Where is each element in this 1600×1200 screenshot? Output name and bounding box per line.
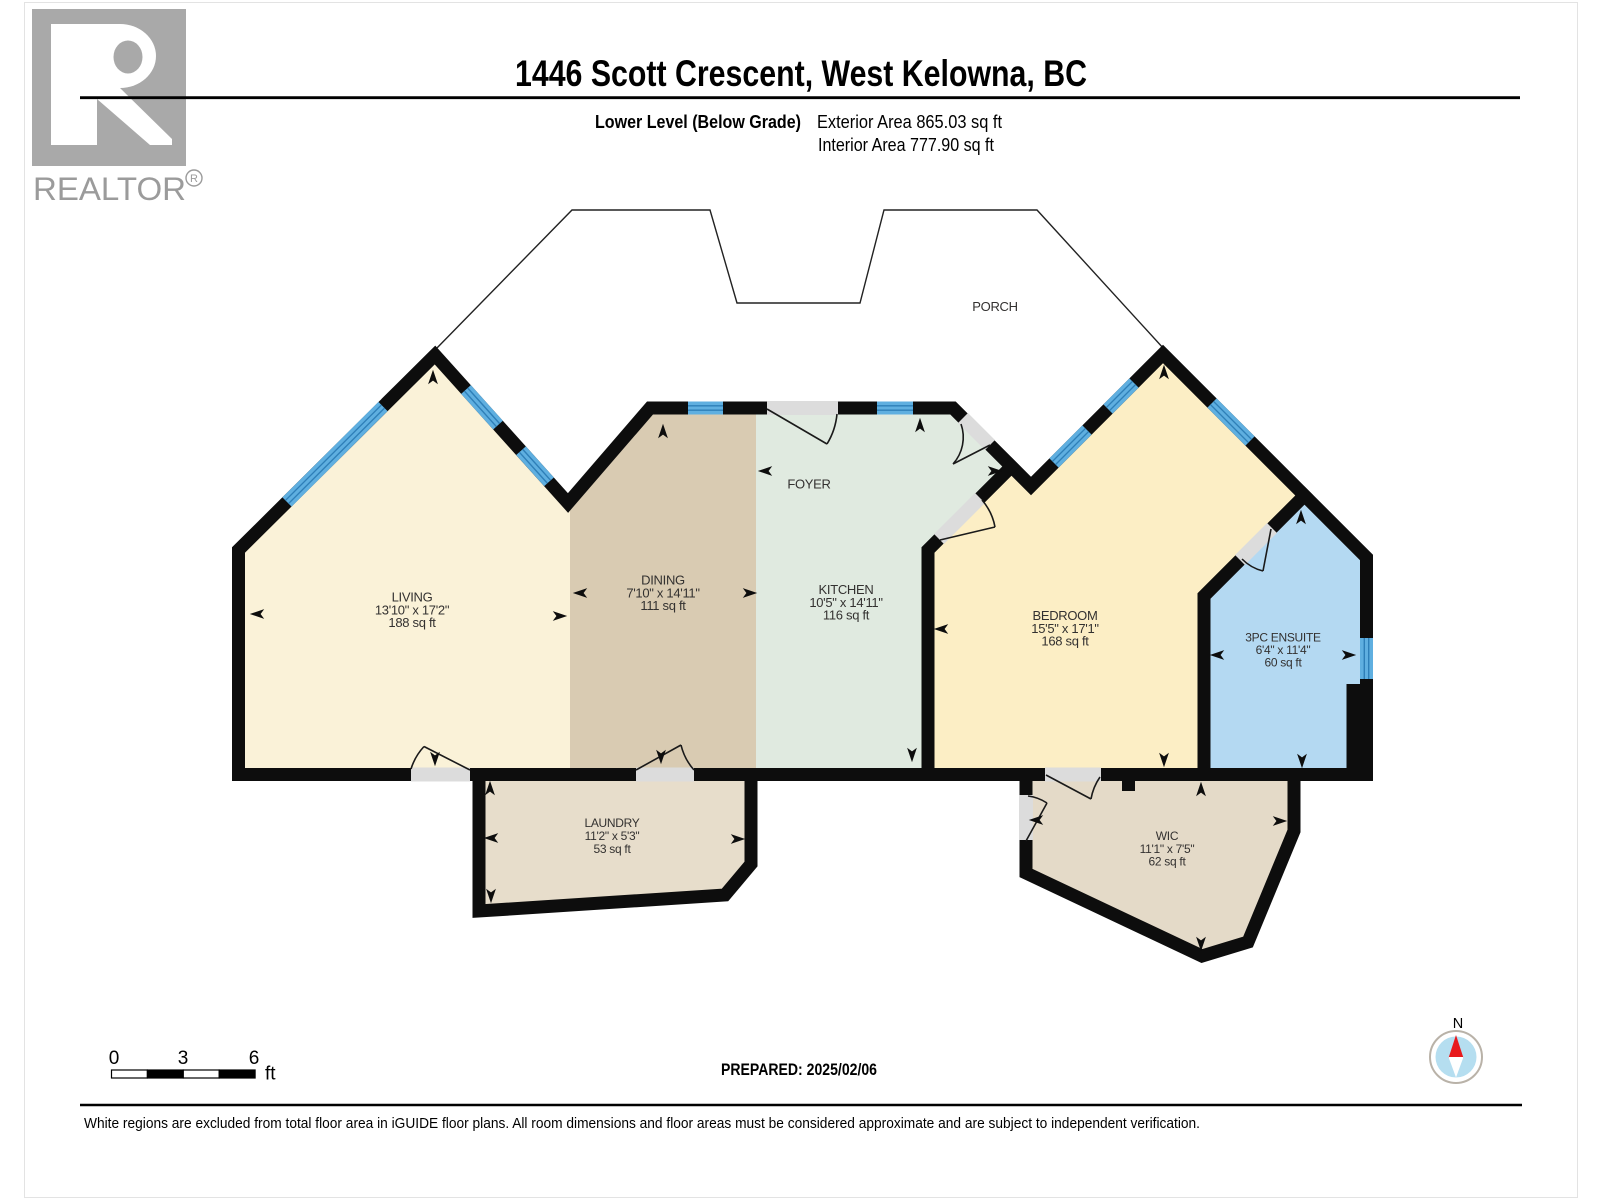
svg-text:Exterior Area 865.03 sq ft: Exterior Area 865.03 sq ft bbox=[817, 111, 1002, 132]
svg-text:Interior Area 777.90 sq ft: Interior Area 777.90 sq ft bbox=[818, 134, 994, 155]
svg-text:White regions are excluded fro: White regions are excluded from total fl… bbox=[84, 1115, 1200, 1132]
svg-text:R: R bbox=[190, 173, 198, 185]
svg-text:6: 6 bbox=[249, 1048, 260, 1069]
svg-text:N: N bbox=[1453, 1016, 1463, 1032]
svg-text:FOYER: FOYER bbox=[787, 477, 830, 492]
svg-text:3: 3 bbox=[178, 1048, 189, 1069]
svg-text:ft: ft bbox=[265, 1064, 276, 1085]
svg-text:Lower Level (Below Grade): Lower Level (Below Grade) bbox=[595, 111, 801, 132]
svg-text:PREPARED: 2025/02/06: PREPARED: 2025/02/06 bbox=[721, 1061, 877, 1079]
svg-text:PORCH: PORCH bbox=[972, 299, 1017, 314]
svg-text:0: 0 bbox=[109, 1048, 120, 1069]
svg-text:1446 Scott Crescent, West Kelo: 1446 Scott Crescent, West Kelowna, BC bbox=[515, 53, 1087, 94]
svg-text:REALTOR: REALTOR bbox=[33, 171, 186, 207]
